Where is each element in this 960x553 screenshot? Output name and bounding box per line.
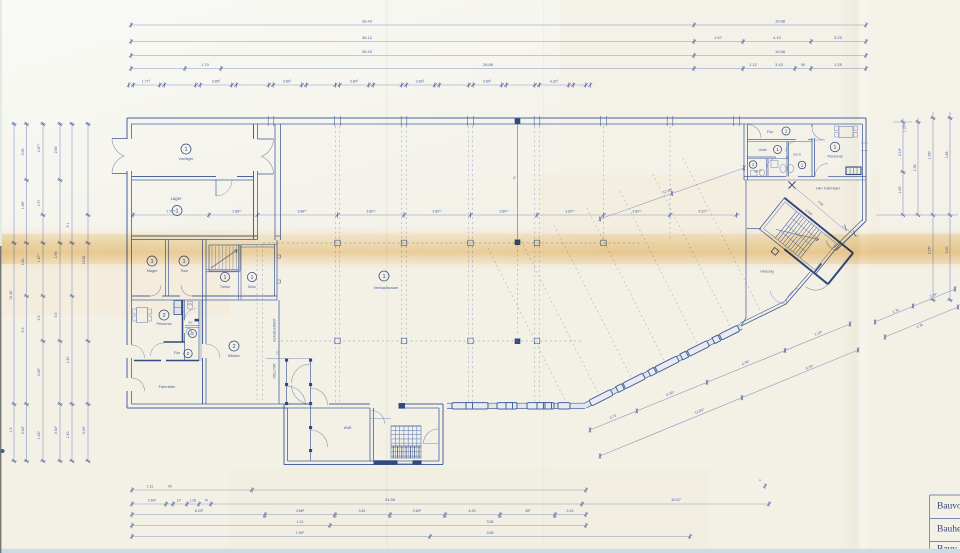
svg-text:3.80⁵: 3.80⁵ [283, 79, 292, 83]
svg-text:Verkaufsraum: Verkaufsraum [374, 285, 399, 290]
svg-text:1.62⁵: 1.62⁵ [37, 430, 41, 439]
svg-text:2.62⁵: 2.62⁵ [21, 425, 25, 434]
svg-text:Büro: Büro [248, 285, 256, 289]
svg-text:WC: WC [188, 321, 192, 325]
svg-text:Lager: Lager [171, 196, 182, 201]
svg-text:1.9: 1.9 [9, 428, 13, 433]
svg-text:HA+ Fahrräder: HA+ Fahrräder [816, 187, 841, 191]
svg-text:3.30⁵: 3.30⁵ [82, 425, 86, 434]
svg-text:2.88: 2.88 [54, 147, 58, 154]
svg-text:1.06: 1.06 [190, 498, 197, 502]
svg-text:2.64⁵: 2.64⁵ [148, 498, 157, 502]
svg-text:1.97: 1.97 [37, 200, 41, 207]
svg-text:36.43: 36.43 [362, 49, 373, 54]
svg-text:WdR.: WdR. [344, 426, 353, 430]
svg-text:Bauvo: Bauvo [937, 502, 960, 512]
svg-text:1.12: 1.12 [749, 62, 758, 67]
svg-text:1: 1 [184, 147, 187, 153]
svg-text:1.39⁵: 1.39⁵ [903, 123, 907, 132]
svg-text:36⁵: 36⁵ [443, 515, 447, 519]
svg-text:2.88⁷⁵: 2.88⁷⁵ [232, 210, 242, 214]
svg-text:1.88: 1.88 [945, 152, 949, 159]
svg-text:10.88: 10.88 [775, 19, 786, 24]
svg-text:3.58: 3.58 [487, 520, 494, 524]
svg-text:Bäcker: Bäcker [228, 354, 241, 358]
svg-text:1.70: 1.70 [201, 62, 210, 67]
svg-text:1: 1 [175, 209, 178, 215]
svg-text:3.80⁵: 3.80⁵ [483, 79, 492, 83]
svg-text:1.40: 1.40 [66, 357, 70, 364]
svg-text:36⁵: 36⁵ [388, 515, 392, 519]
svg-text:75: 75 [513, 176, 517, 180]
svg-text:36⁵: 36⁵ [333, 515, 337, 519]
svg-text:1.77⁵: 1.77⁵ [142, 79, 151, 83]
svg-text:1.86⁵: 1.86⁵ [21, 200, 25, 209]
svg-text:1.67: 1.67 [714, 35, 723, 40]
svg-text:1: 1 [834, 145, 837, 151]
svg-text:Flur: Flur [174, 351, 181, 355]
svg-text:2: 2 [187, 351, 190, 357]
svg-text:3.80⁵: 3.80⁵ [416, 79, 425, 83]
svg-text:3.80⁷⁵: 3.80⁷⁵ [499, 210, 509, 214]
svg-text:1: 1 [776, 147, 779, 152]
svg-text:1.14: 1.14 [297, 520, 304, 524]
svg-text:3.55: 3.55 [21, 149, 25, 156]
svg-text:Flur: Flur [767, 130, 774, 134]
svg-text:36⁵: 36⁵ [498, 515, 502, 519]
svg-text:3.80⁷⁵: 3.80⁷⁵ [432, 210, 442, 214]
svg-text:3.58: 3.58 [487, 531, 494, 535]
svg-text:90: 90 [168, 485, 172, 489]
svg-text:4.25: 4.25 [469, 509, 476, 513]
svg-text:WC-H: WC-H [793, 153, 801, 157]
svg-text:4.10: 4.10 [773, 35, 782, 40]
svg-text:1.66⁵: 1.66⁵ [928, 150, 932, 159]
svg-text:4.22⁷⁵: 4.22⁷⁵ [698, 210, 708, 214]
svg-text:Personal: Personal [828, 155, 843, 159]
svg-text:3.80⁷⁵: 3.80⁷⁵ [366, 210, 376, 214]
svg-text:Vorläger: Vorläger [179, 156, 195, 161]
svg-text:Fahrräder: Fahrräder [159, 385, 176, 389]
svg-text:2.19⁵: 2.19⁵ [898, 147, 902, 156]
svg-text:Umkl.: Umkl. [759, 148, 768, 152]
svg-text:3.80⁵: 3.80⁵ [350, 79, 359, 83]
svg-text:3.62⁵: 3.62⁵ [54, 425, 58, 434]
svg-text:2: 2 [191, 331, 194, 336]
svg-text:56: 56 [801, 63, 805, 67]
svg-text:3.80⁷⁵: 3.80⁷⁵ [565, 210, 575, 214]
svg-text:36.12: 36.12 [362, 35, 373, 40]
svg-text:Bauhe: Bauhe [937, 525, 960, 535]
svg-text:36⁵: 36⁵ [263, 515, 267, 519]
svg-text:1.65: 1.65 [898, 187, 902, 194]
svg-text:GLASELEMENT: GLASELEMENT [273, 318, 277, 342]
svg-text:3.88⁷⁵: 3.88⁷⁵ [297, 210, 307, 214]
svg-text:36.43: 36.43 [362, 19, 373, 24]
svg-text:4.32⁵: 4.32⁵ [550, 79, 559, 83]
svg-text:1: 1 [224, 275, 227, 281]
svg-text:4.5: 4.5 [37, 316, 41, 321]
svg-text:1.38: 1.38 [913, 165, 917, 172]
svg-text:1: 1 [785, 129, 788, 134]
svg-text:3.85⁵: 3.85⁵ [212, 79, 221, 83]
svg-text:Personal: Personal [157, 322, 172, 326]
svg-text:≤: ≤ [759, 478, 761, 482]
svg-text:ROLLTOR: ROLLTOR [273, 363, 277, 378]
svg-text:Tresor: Tresor [220, 285, 231, 289]
svg-text:36⁵: 36⁵ [525, 509, 531, 513]
svg-text:4.58⁵: 4.58⁵ [296, 509, 305, 513]
svg-text:1: 1 [382, 274, 385, 280]
svg-text:5.5: 5.5 [54, 313, 58, 318]
svg-text:2.87⁵: 2.87⁵ [37, 143, 41, 152]
svg-text:26.86: 26.86 [483, 62, 494, 67]
svg-text:3.25: 3.25 [834, 35, 843, 40]
svg-text:31.45: 31.45 [9, 291, 13, 300]
svg-text:1.50⁵: 1.50⁵ [296, 531, 305, 535]
svg-text:3.83⁵: 3.83⁵ [413, 509, 422, 513]
svg-text:1: 1 [251, 275, 254, 281]
svg-text:1.11: 1.11 [147, 485, 153, 489]
svg-text:74: 74 [204, 498, 208, 502]
svg-text:36⁵: 36⁵ [553, 515, 557, 519]
svg-text:11⁵: 11⁵ [177, 498, 182, 502]
svg-text:2: 2 [232, 344, 235, 350]
svg-text:2.43: 2.43 [567, 509, 574, 513]
svg-text:10.57: 10.57 [671, 497, 682, 502]
svg-text:3.62⁵: 3.62⁵ [37, 367, 41, 376]
svg-text:5.3: 5.3 [21, 328, 25, 333]
svg-text:9.1: 9.1 [66, 223, 70, 228]
svg-text:24.56: 24.56 [385, 497, 396, 502]
svg-text:1.25: 1.25 [834, 62, 843, 67]
svg-text:3.81: 3.81 [359, 509, 366, 513]
svg-text:3.80⁷⁵: 3.80⁷⁵ [632, 210, 642, 214]
svg-text:2: 2 [162, 313, 165, 319]
svg-text:1.40: 1.40 [66, 432, 70, 439]
svg-text:3.10: 3.10 [775, 62, 784, 67]
svg-text:8.23⁵: 8.23⁵ [195, 509, 204, 513]
svg-text:10.88: 10.88 [775, 49, 786, 54]
